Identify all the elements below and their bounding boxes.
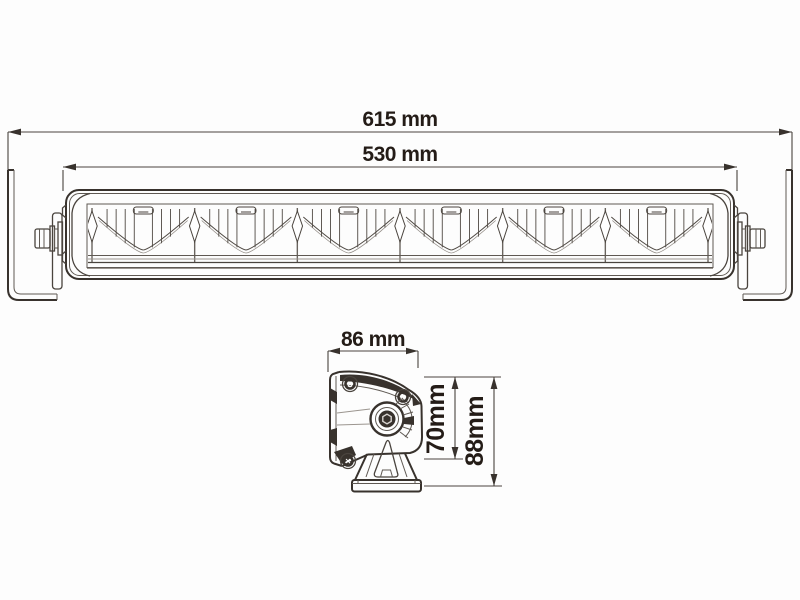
triangle-cutout xyxy=(374,441,398,478)
arrow-up-icon xyxy=(491,377,498,389)
base-flange xyxy=(352,480,421,492)
arrow-right-icon xyxy=(406,348,418,354)
lens-pattern xyxy=(87,207,713,262)
pivot-bolt xyxy=(371,403,404,436)
mounting-bracket-right xyxy=(738,170,793,300)
dimension-label-530: 530 mm xyxy=(362,143,437,166)
housing-side xyxy=(330,371,422,491)
arrow-down-icon xyxy=(452,447,459,459)
dimension-86: 86 mm xyxy=(328,328,418,372)
arrow-up-icon xyxy=(452,377,459,389)
front-view: 615 mm 530 mm xyxy=(8,108,792,300)
dimension-label-86: 86 mm xyxy=(341,328,405,351)
arrow-left-icon xyxy=(63,164,76,171)
screw-bottom-left xyxy=(341,454,356,469)
dimension-label-88: 88mm xyxy=(461,396,489,466)
arrow-down-icon xyxy=(491,474,498,486)
dimension-label-615: 615 mm xyxy=(362,108,437,131)
arrow-right-icon xyxy=(724,164,737,171)
arrow-left-icon xyxy=(328,348,340,354)
dimension-530: 530 mm xyxy=(63,143,737,191)
adjustment-knob xyxy=(35,222,63,255)
screw-top-left xyxy=(343,377,358,392)
light-bar-front xyxy=(63,190,738,279)
technical-drawing-page: 615 mm 530 mm xyxy=(0,0,800,600)
arrow-left-icon xyxy=(8,129,21,136)
dimension-label-70: 70mm xyxy=(422,384,450,454)
side-view: 86 mm xyxy=(328,328,502,492)
led-light-bar-drawing: 615 mm 530 mm xyxy=(0,0,800,600)
arrow-right-icon xyxy=(779,129,792,136)
mounting-foot xyxy=(352,441,421,492)
mounting-bracket-left xyxy=(8,170,63,300)
